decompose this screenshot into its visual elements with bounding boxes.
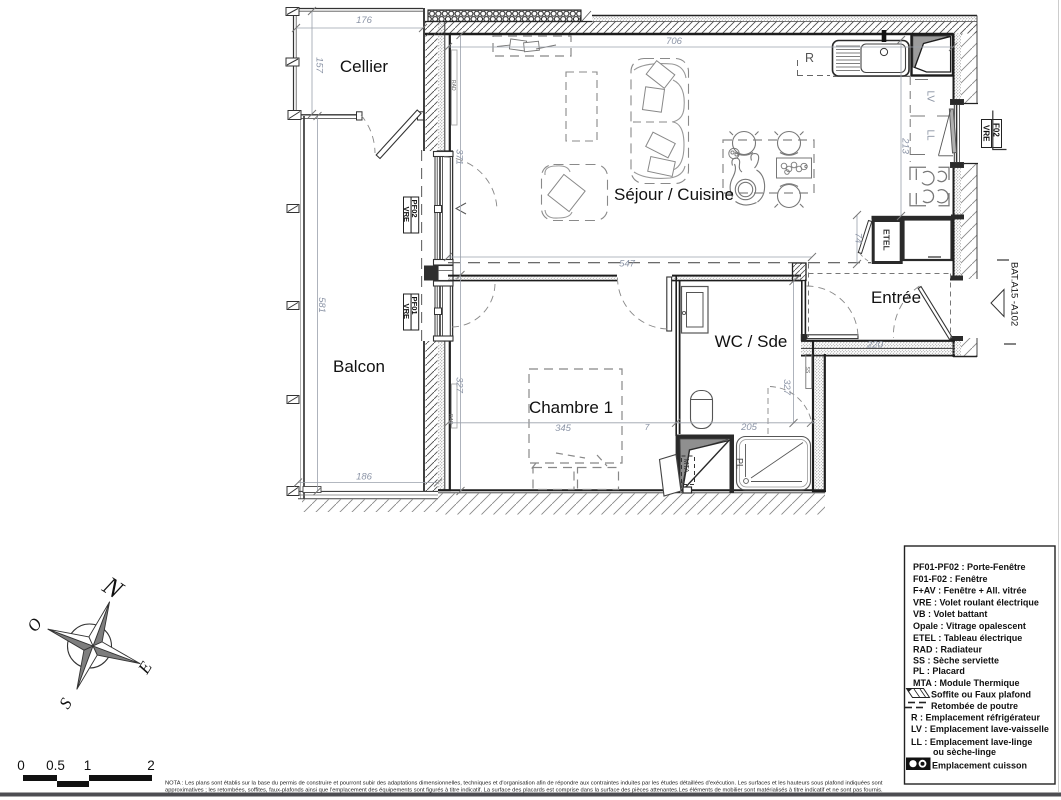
svg-text:SS: SS [804,367,810,374]
svg-text:F+AV : Fenêtre + All. vitrée: F+AV : Fenêtre + All. vitrée [913,586,1027,596]
svg-text:NOTA : Les plans sont établis: NOTA : Les plans sont établis sur la bas… [165,781,883,787]
svg-text:0.5: 0.5 [46,758,65,773]
svg-text:SS : Sèche serviette: SS : Sèche serviette [913,655,999,665]
svg-text:205: 205 [740,422,758,433]
svg-text:VRE: VRE [982,125,991,142]
svg-text:7: 7 [645,422,650,432]
svg-text:VRE: VRE [402,304,411,320]
svg-text:WC / Sde: WC / Sde [715,332,788,351]
svg-text:Chambre 1: Chambre 1 [529,398,613,417]
svg-text:Balcon: Balcon [333,357,385,376]
svg-text:BAT.A15 -A102: BAT.A15 -A102 [1009,262,1020,326]
svg-text:Emplacement cuisson: Emplacement cuisson [932,761,1027,771]
svg-text:186: 186 [356,472,373,483]
svg-text:581: 581 [316,297,327,313]
svg-text:MTA: MTA [682,459,689,474]
svg-text:547: 547 [619,259,636,270]
svg-text:VRE : Volet roulant électrique: VRE : Volet roulant électrique [913,597,1039,607]
svg-text:LV: LV [925,91,936,103]
svg-text:Cellier: Cellier [340,57,389,76]
svg-text:2: 2 [147,758,155,773]
svg-text:74: 74 [853,233,864,244]
svg-text:ETEL : Tableau électrique: ETEL : Tableau électrique [913,633,1022,643]
svg-text:VB : Volet battant: VB : Volet battant [913,609,987,619]
svg-text:R: R [805,51,814,65]
svg-text:Entrée: Entrée [871,288,921,307]
svg-text:345: 345 [555,423,572,434]
svg-text:RAD : Radiateur: RAD : Radiateur [913,645,983,655]
svg-text:PL: PL [735,458,745,469]
svg-text:213: 213 [900,137,911,155]
svg-text:RAD: RAD [450,80,456,91]
svg-text:176: 176 [356,15,373,26]
svg-text:VRE: VRE [402,207,411,223]
svg-text:327: 327 [781,379,792,396]
svg-text:371: 371 [454,149,465,165]
svg-text:ou sèche-linge: ou sèche-linge [933,747,996,757]
svg-text:LL : Emplacement lave-linge: LL : Emplacement lave-linge [911,737,1032,747]
svg-text:PL : Placard: PL : Placard [913,666,965,676]
svg-text:157: 157 [314,57,325,74]
svg-text:Séjour / Cuisine: Séjour / Cuisine [614,185,734,204]
svg-text:1: 1 [84,758,92,773]
svg-text:706: 706 [666,36,683,47]
svg-text:F01-F02 : Fenêtre: F01-F02 : Fenêtre [913,574,988,584]
svg-text:Retombée de poutre: Retombée de poutre [931,701,1018,711]
svg-text:LL: LL [925,130,936,142]
svg-text:LV : Emplacement lave-vaissell: LV : Emplacement lave-vaisselle [911,724,1049,734]
svg-text:Opale : Vitrage opalescent: Opale : Vitrage opalescent [913,621,1026,631]
svg-text:PF01-PF02 : Porte-Fenêtre: PF01-PF02 : Porte-Fenêtre [913,562,1026,572]
svg-text:327: 327 [454,377,465,394]
svg-text:R : Emplacement réfrigérateur: R : Emplacement réfrigérateur [911,712,1041,722]
svg-text:Soffite ou Faux plafond: Soffite ou Faux plafond [931,689,1031,699]
svg-text:220: 220 [866,340,884,351]
svg-text:MTA : Module Thermique: MTA : Module Thermique [913,678,1020,688]
svg-text:0: 0 [17,758,25,773]
svg-text:ETEL: ETEL [882,229,892,251]
